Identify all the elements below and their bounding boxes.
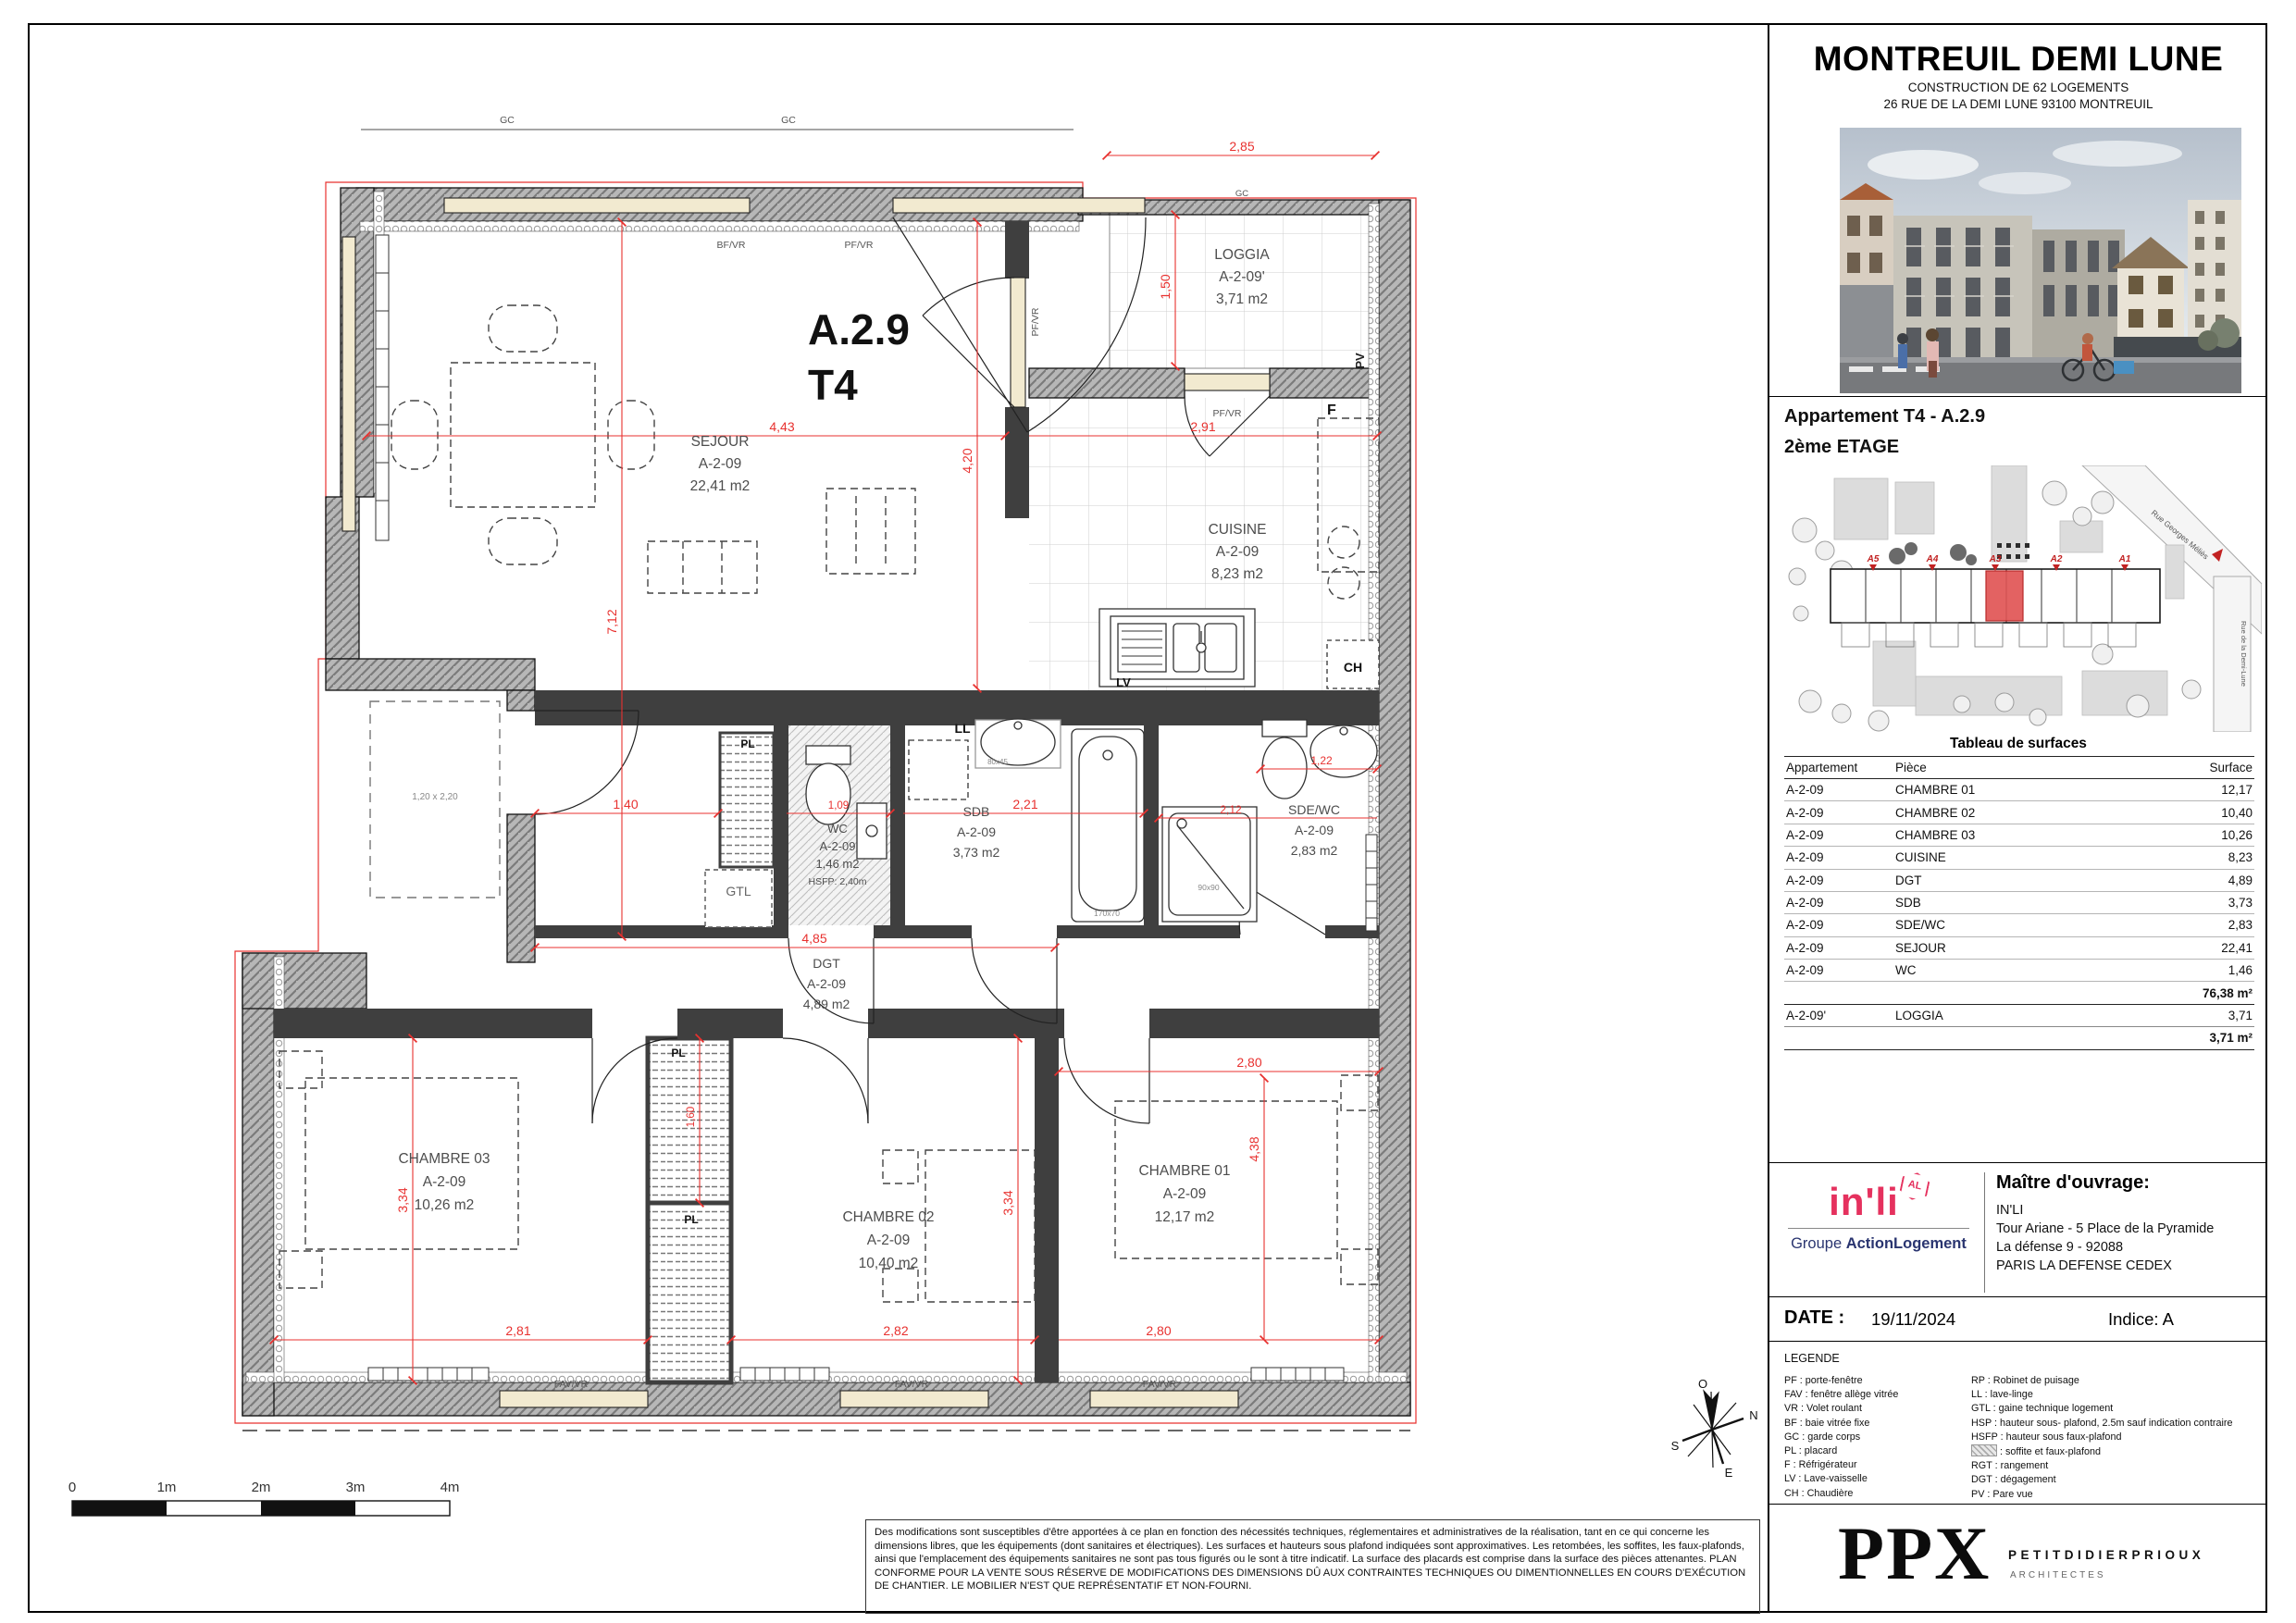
svg-text:F: F (1327, 403, 1336, 418)
inli-logo-rule (1788, 1228, 1969, 1229)
svg-text:FAV/VR: FAV/VR (554, 1379, 589, 1390)
svg-text:FAV/VR: FAV/VR (895, 1379, 929, 1390)
legend-item: VR : Volet roulant (1784, 1402, 1967, 1416)
surface-row: A-2-09SDB3,73 (1784, 891, 2254, 913)
svg-text:PL: PL (740, 737, 754, 750)
owner-block: Maître d'ouvrage: IN'LI Tour Ariane - 5 … (1984, 1172, 2274, 1293)
compass-icon: O N S E (1671, 1377, 1758, 1480)
inli-al-badge-icon: AL (1898, 1170, 1931, 1203)
svg-text:PL: PL (671, 1047, 685, 1059)
surface-row: A-2-09CHAMBRE 0210,40 (1784, 801, 2254, 824)
unit-id: A.2.9 (808, 305, 910, 353)
gtl-box (705, 870, 772, 927)
svg-text:A2: A2 (2050, 554, 2063, 564)
svg-text:FAV/VR: FAV/VR (1143, 1379, 1177, 1390)
legend-heading: LEGENDE (1784, 1352, 1840, 1365)
svg-text:1,50: 1,50 (1158, 274, 1173, 299)
svg-text:PV: PV (1353, 353, 1367, 369)
inli-logo: in'liAL Groupe ActionLogement (1782, 1180, 1975, 1253)
divider (1769, 1296, 2267, 1297)
svg-text:1,46 m2: 1,46 m2 (816, 857, 860, 871)
svg-text:3,71 m2: 3,71 m2 (1216, 291, 1268, 307)
unit-type: T4 (808, 361, 858, 409)
soffit-hatch-icon (1971, 1444, 1997, 1456)
svg-text:A-2-09: A-2-09 (1295, 823, 1334, 837)
svg-text:A-2-09: A-2-09 (867, 1233, 911, 1248)
surface-total-main: 76,38 m² (1784, 982, 2254, 1004)
svg-text:LL: LL (954, 721, 971, 736)
svg-text:8,23 m2: 8,23 m2 (1211, 566, 1263, 582)
svg-text:12,17 m2: 12,17 m2 (1155, 1209, 1215, 1225)
svg-text:0: 0 (68, 1480, 76, 1495)
svg-text:SEJOUR: SEJOUR (691, 434, 750, 450)
site-plan: Rue Georges Méliès Rue de la Demi-Lune (1777, 465, 2262, 732)
svg-text:DGT: DGT (813, 956, 840, 971)
svg-text:CH: CH (1344, 660, 1362, 675)
svg-text:CHAMBRE 02: CHAMBRE 02 (842, 1209, 934, 1225)
owner-heading: Maître d'ouvrage: (1996, 1172, 2274, 1194)
legend-item: PV : Pare vue (1971, 1488, 2265, 1502)
legend-item: HSFP : hauteur sous faux-plafond (1971, 1431, 2265, 1444)
highlighted-unit (1986, 571, 2023, 621)
svg-text:GC: GC (500, 115, 515, 126)
svg-text:BF/VR: BF/VR (717, 240, 746, 251)
svg-text:A3: A3 (1989, 554, 2002, 564)
svg-text:2,80: 2,80 (1236, 1055, 1261, 1070)
disclaimer-text: Des modifications sont susceptibles d'êt… (865, 1519, 1760, 1614)
svg-text:PL: PL (684, 1213, 698, 1226)
svg-text:170x70: 170x70 (1094, 909, 1120, 918)
legend-item: LL : lave-linge (1971, 1388, 2265, 1402)
svg-text:1,22: 1,22 (1310, 754, 1333, 767)
legend-item: RGT : rangement (1971, 1459, 2265, 1473)
surface-row: A-2-09SDE/WC2,83 (1784, 914, 2254, 936)
surface-row: A-2-09CUISINE8,23 (1784, 847, 2254, 869)
svg-text:4,20: 4,20 (960, 448, 974, 473)
legend-item: CH : Chaudière (1784, 1487, 1967, 1501)
project-title: MONTREUIL DEMI LUNE (1769, 40, 2267, 79)
surface-row: A-2-09CHAMBRE 0112,17 (1784, 779, 2254, 801)
surface-row: A-2-09CHAMBRE 0310,26 (1784, 824, 2254, 846)
svg-text:LV: LV (1116, 675, 1131, 689)
legend-col1: PF : porte-fenêtreFAV : fenêtre allège v… (1784, 1374, 1967, 1501)
svg-text:2,82: 2,82 (883, 1323, 908, 1338)
svg-text:A-2-09: A-2-09 (1163, 1186, 1207, 1202)
svg-text:A-2-09: A-2-09 (423, 1174, 466, 1190)
svg-text:2,80: 2,80 (1146, 1323, 1171, 1338)
svg-text:2,12: 2,12 (1220, 803, 1242, 816)
svg-text:CHAMBRE 03: CHAMBRE 03 (398, 1151, 490, 1167)
owner-line: PARIS LA DEFENSE CEDEX (1996, 1257, 2274, 1275)
svg-text:7,12: 7,12 (604, 609, 619, 634)
divider (1769, 1504, 2267, 1505)
title-block-panel: MONTREUIL DEMI LUNE CONSTRUCTION DE 62 L… (1769, 23, 2267, 1611)
svg-text:3,34: 3,34 (395, 1187, 410, 1212)
architect-name: PETITDIDIERPRIOUX (2008, 1548, 2204, 1562)
svg-text:WC: WC (827, 822, 848, 836)
svg-text:PF/VR: PF/VR (1213, 408, 1242, 419)
svg-text:2,21: 2,21 (1012, 797, 1037, 811)
surface-table: Appartement Pièce Surface A-2-09CHAMBRE … (1784, 756, 2254, 1050)
surface-table-title: Tableau de surfaces (1769, 736, 2267, 752)
svg-text:A4: A4 (1926, 554, 1939, 564)
placard-ch2 (648, 1203, 731, 1382)
inli-group-text: Groupe ActionLogement (1782, 1235, 1975, 1253)
owner-line: La défense 9 - 92088 (1996, 1238, 2274, 1257)
svg-text:3m: 3m (346, 1480, 366, 1495)
surface-total-loggia: 3,71 m² (1784, 1027, 2254, 1049)
svg-text:A5: A5 (1867, 554, 1880, 564)
svg-text:1,40: 1,40 (613, 797, 638, 811)
svg-text:10,40 m2: 10,40 m2 (859, 1256, 919, 1271)
svg-text:GTL: GTL (726, 884, 751, 898)
surface-row: A-2-09SEJOUR22,41 (1784, 936, 2254, 959)
svg-text:4,89 m2: 4,89 m2 (803, 997, 850, 1011)
svg-text:80x45: 80x45 (987, 758, 1008, 766)
svg-text:S: S (1671, 1439, 1680, 1453)
svg-text:2,81: 2,81 (505, 1323, 530, 1338)
legend-item: GC : garde corps (1784, 1431, 1967, 1444)
legend-item: GTL : gaine technique logement (1971, 1402, 2265, 1416)
svg-text:2m: 2m (252, 1480, 271, 1495)
svg-text:A-2-09': A-2-09' (1219, 269, 1265, 285)
svg-text:2,91: 2,91 (1190, 419, 1215, 434)
surface-table-header: Appartement Pièce Surface (1784, 757, 2254, 779)
svg-text:SDE/WC: SDE/WC (1288, 802, 1340, 817)
legend-item: FAV : fenêtre allège vitrée (1784, 1388, 1967, 1402)
legend-item: PL : placard (1784, 1444, 1967, 1458)
divider (1769, 1341, 2267, 1342)
svg-text:A-2-09: A-2-09 (819, 839, 855, 853)
svg-text:PF/VR: PF/VR (845, 240, 874, 251)
project-subtitle-2: 26 RUE DE LA DEMI LUNE 93100 MONTREUIL (1769, 97, 2267, 111)
svg-text:CUISINE: CUISINE (1209, 522, 1267, 538)
svg-text:HSFP: 2,40m: HSFP: 2,40m (808, 876, 866, 887)
legend-swatch-line: : soffite et faux-plafond (1971, 1444, 2265, 1459)
architect-logo: PPX (1838, 1507, 1991, 1600)
svg-text:22,41 m2: 22,41 m2 (690, 478, 751, 494)
svg-text:2,83 m2: 2,83 m2 (1291, 843, 1338, 858)
divider (1769, 396, 2267, 397)
owner-line: IN'LI (1996, 1201, 2274, 1220)
date-label: DATE : (1784, 1307, 1844, 1329)
apartment-title: Appartement T4 - A.2.9 (1784, 406, 1985, 427)
svg-text:N: N (1749, 1408, 1757, 1422)
date-value: 19/11/2024 (1871, 1309, 1955, 1330)
svg-text:1m: 1m (157, 1480, 177, 1495)
svg-text:SDB: SDB (963, 804, 990, 819)
svg-text:A1: A1 (2118, 554, 2131, 564)
legend-col2: RP : Robinet de puisageLL : lave-lingeGT… (1971, 1374, 2265, 1502)
street-name-2: Rue de la Demi-Lune (2240, 621, 2248, 687)
surface-row: A-2-09WC1,46 (1784, 960, 2254, 982)
svg-text:E: E (1725, 1466, 1733, 1480)
svg-text:4m: 4m (441, 1480, 460, 1495)
project-photo (1840, 128, 2241, 393)
surface-row: A-2-09DGT4,89 (1784, 869, 2254, 891)
svg-text:A-2-09: A-2-09 (1216, 544, 1260, 560)
legend-item: PF : porte-fenêtre (1784, 1374, 1967, 1388)
legend-item: HSP : hauteur sous- plafond, 2.5m sauf i… (1971, 1417, 2265, 1431)
svg-text:PF/VR: PF/VR (1030, 307, 1041, 336)
svg-text:1,20 x 2,20: 1,20 x 2,20 (412, 792, 458, 802)
owner-line: Tour Ariane - 5 Place de la Pyramide (1996, 1220, 2274, 1238)
svg-text:4,38: 4,38 (1247, 1136, 1261, 1161)
svg-text:2,85: 2,85 (1229, 139, 1254, 154)
svg-text:3,73 m2: 3,73 m2 (953, 845, 1000, 860)
project-subtitle-1: CONSTRUCTION DE 62 LOGEMENTS (1769, 81, 2267, 94)
drawing-sheet: 4,43 2,91 4,20 7,12 2,85 1,50 1,40 1,09 … (0, 0, 2296, 1623)
svg-text:10,26 m2: 10,26 m2 (415, 1197, 475, 1213)
legend-item: LV : Lave-vaisselle (1784, 1472, 1967, 1486)
svg-text:A-2-09: A-2-09 (807, 976, 846, 991)
scale-bar: 0 1m 2m 3m 4m (68, 1480, 460, 1516)
legend-item: RP : Robinet de puisage (1971, 1374, 2265, 1388)
svg-text:3,34: 3,34 (1000, 1190, 1015, 1215)
legend-item: DGT : dégagement (1971, 1473, 2265, 1487)
svg-text:GC: GC (781, 115, 796, 126)
svg-text:4,43: 4,43 (769, 419, 794, 434)
svg-text:1,60: 1,60 (686, 1107, 697, 1127)
indice-value: Indice: A (2108, 1309, 2174, 1330)
legend-item: F : Réfrigérateur (1784, 1458, 1967, 1472)
svg-text:A-2-09: A-2-09 (957, 824, 996, 839)
architect-subtitle: ARCHITECTES (2010, 1570, 2106, 1580)
svg-text:LOGGIA: LOGGIA (1214, 247, 1270, 263)
svg-text:GC: GC (1235, 189, 1248, 199)
svg-text:1,09: 1,09 (828, 800, 849, 811)
placard-hall (720, 733, 774, 867)
svg-text:90x90: 90x90 (1198, 883, 1219, 892)
svg-text:CHAMBRE 01: CHAMBRE 01 (1138, 1163, 1230, 1179)
divider (1769, 1162, 2267, 1163)
svg-text:A-2-09: A-2-09 (699, 456, 742, 472)
legend-item: BF : baie vitrée fixe (1784, 1417, 1967, 1431)
svg-text:O: O (1698, 1377, 1707, 1391)
svg-text:4,85: 4,85 (801, 931, 826, 946)
floor-title: 2ème ETAGE (1784, 437, 1899, 458)
inli-logo-text: in'li (1829, 1180, 1899, 1224)
surface-row-loggia: A-2-09' LOGGIA 3,71 (1784, 1004, 2254, 1026)
